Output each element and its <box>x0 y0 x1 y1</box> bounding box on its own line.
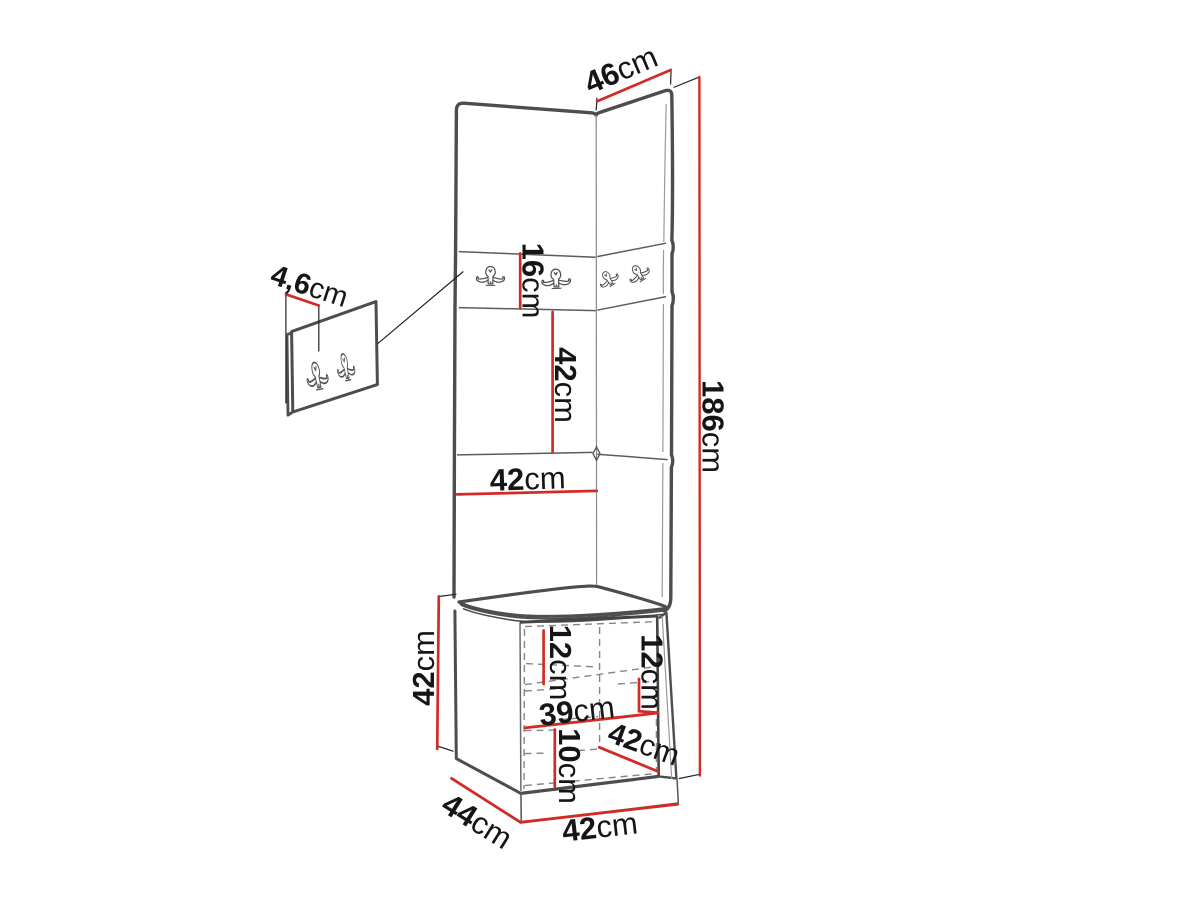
svg-text:12cm: 12cm <box>543 625 578 701</box>
svg-text:42cm: 42cm <box>406 630 441 706</box>
svg-text:186cm: 186cm <box>695 380 730 473</box>
svg-text:12cm: 12cm <box>634 634 669 710</box>
svg-text:42cm: 42cm <box>548 347 583 423</box>
svg-text:42cm: 42cm <box>489 460 566 498</box>
svg-text:10cm: 10cm <box>552 728 587 804</box>
svg-text:16cm: 16cm <box>515 243 550 319</box>
